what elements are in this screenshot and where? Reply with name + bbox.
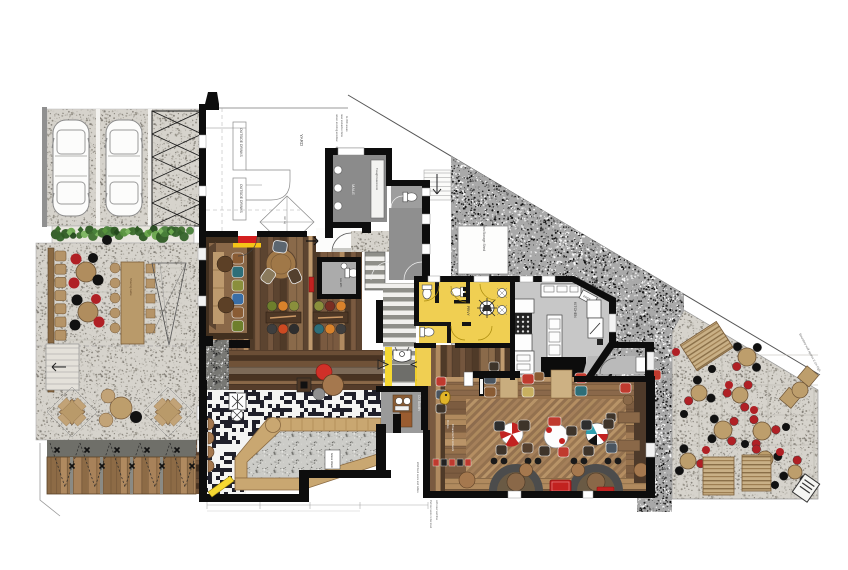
svg-text:OUTSIDE DRINKS: OUTSIDE DRINKS — [239, 128, 243, 158]
svg-text:Drinks: Drinks — [446, 420, 450, 429]
svg-text:Sharing table: Sharing table — [129, 278, 133, 296]
svg-text:KITCHEN: KITCHEN — [573, 302, 577, 318]
svg-text:Characterful Artwork: Characterful Artwork — [451, 424, 455, 452]
svg-text:Acc WC: Acc WC — [339, 278, 343, 287]
svg-text:new extractor fans: new extractor fans — [340, 114, 344, 137]
svg-text:Wall fixed seats and tables: Wall fixed seats and tables — [416, 462, 420, 493]
svg-text:Van Storage Shed: Van Storage Shed — [482, 225, 486, 251]
svg-text:3m sq: 3m sq — [283, 216, 287, 225]
svg-text:Glass Wash: Glass Wash — [330, 453, 334, 468]
svg-text:to WC areas: to WC areas — [345, 116, 349, 132]
svg-text:OUTSIDE DRINKS: OUTSIDE DRINKS — [239, 184, 243, 214]
svg-text:Pull out seats to be level: Pull out seats to be level — [429, 500, 433, 529]
svg-text:YARD: YARD — [299, 134, 304, 147]
svg-text:Trough basin/sink: Trough basin/sink — [375, 168, 379, 191]
svg-text:DJ Booth: DJ Booth — [417, 395, 421, 411]
svg-text:with new wall line: with new wall line — [435, 500, 439, 521]
svg-text:MALE: MALE — [351, 184, 356, 195]
svg-text:PRIVY: PRIVY — [466, 306, 470, 316]
svg-text:retain existing window: retain existing window — [335, 114, 339, 142]
